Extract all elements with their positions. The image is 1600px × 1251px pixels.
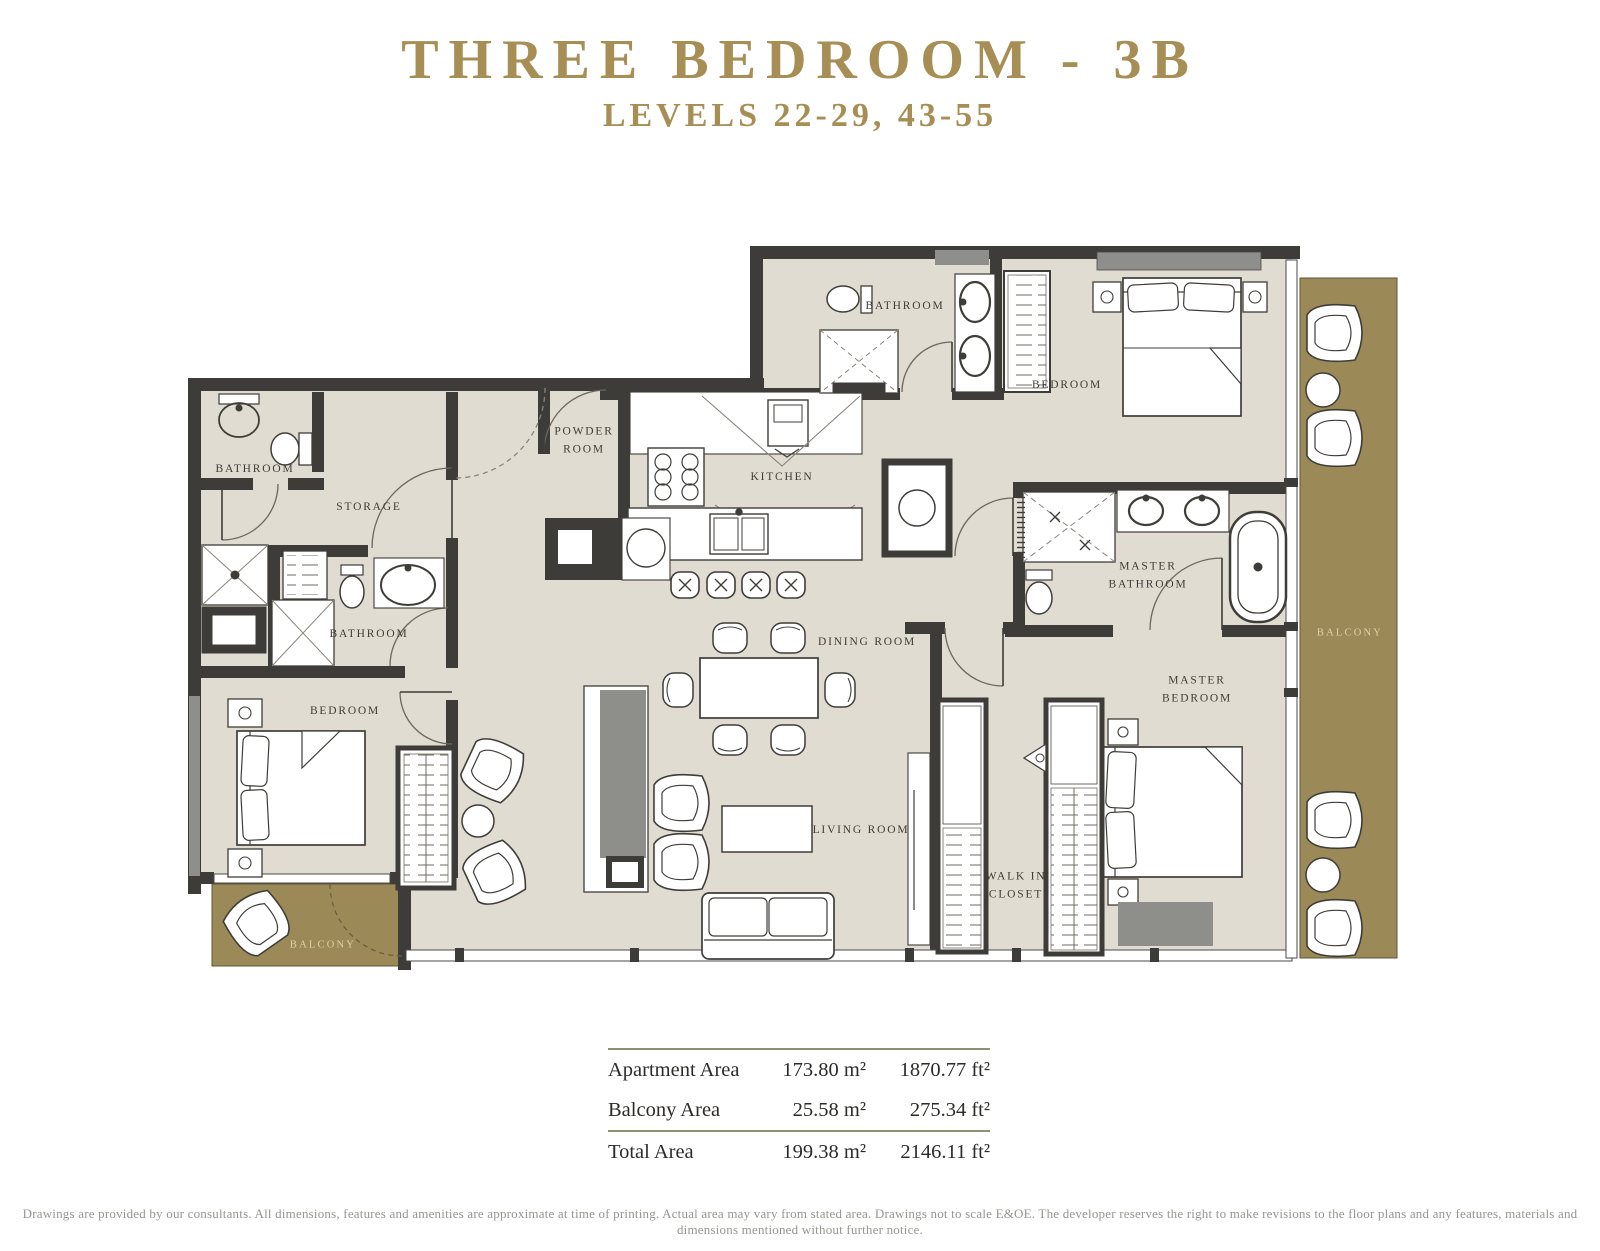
row-imperial: 2146.11 ft² <box>866 1141 990 1164</box>
row-label: Balcony Area <box>608 1099 748 1122</box>
closet-column-2 <box>1046 700 1102 954</box>
rug-master <box>1118 902 1213 946</box>
room-label-master-bedroom: MASTER BEDROOM <box>1162 672 1232 709</box>
closet-column-1 <box>938 700 986 952</box>
table-row-total: Total Area 199.38 m² 2146.11 ft² <box>608 1132 990 1172</box>
wardrobe-bedroom-top <box>1004 271 1050 392</box>
row-label: Apartment Area <box>608 1059 748 1082</box>
room-label-balcony-right: BALCONY <box>1317 626 1383 643</box>
area-table: Apartment Area 173.80 m² 1870.77 ft² Bal… <box>608 1048 990 1172</box>
window-lintel-top-right <box>1097 252 1261 270</box>
room-label-balcony-left: BALCONY <box>290 938 356 955</box>
room-label-master-bathroom: MASTER BATHROOM <box>1109 558 1188 595</box>
table-row-balcony: Balcony Area 25.58 m² 275.34 ft² <box>608 1090 990 1130</box>
bed-master <box>1102 719 1242 905</box>
row-imperial: 275.34 ft² <box>866 1099 990 1122</box>
room-label-dining-room: DINING ROOM <box>818 633 916 651</box>
row-metric: 199.38 m² <box>748 1141 866 1164</box>
room-label-living-room: LIVING ROOM <box>813 821 910 839</box>
row-label: Total Area <box>608 1141 748 1164</box>
room-label-bedroom-left: BEDROOM <box>310 702 380 720</box>
row-metric: 25.58 m² <box>748 1099 866 1122</box>
room-label-bathroom-2: BATHROOM <box>330 625 409 643</box>
window-lintel-top <box>935 250 989 265</box>
room-label-walk-in-closet: WALK IN CLOSET <box>986 868 1047 905</box>
row-metric: 173.80 m² <box>748 1059 866 1082</box>
disclaimer-text: Drawings are provided by our consultants… <box>0 1206 1600 1238</box>
tv-console <box>600 690 646 858</box>
shower-left-column <box>202 545 268 653</box>
room-label-kitchen: KITCHEN <box>750 468 813 486</box>
floorplan-page: THREE BEDROOM - 3B LEVELS 22-29, 43-55 <box>0 0 1600 1251</box>
coffee-table <box>722 806 812 852</box>
room-label-storage: STORAGE <box>336 498 401 516</box>
room-label-bathroom-top: BATHROOM <box>866 297 945 315</box>
row-imperial: 1870.77 ft² <box>866 1059 990 1082</box>
window-band-left <box>189 696 200 876</box>
room-label-bathroom-1: BATHROOM <box>216 460 295 478</box>
wardrobe-bedroom-left <box>398 748 454 888</box>
sofa <box>702 893 834 959</box>
table-row-apartment: Apartment Area 173.80 m² 1870.77 ft² <box>608 1050 990 1090</box>
room-label-bedroom-top: BEDROOM <box>1032 376 1102 394</box>
room-label-powder-room: POWDER ROOM <box>554 423 613 460</box>
